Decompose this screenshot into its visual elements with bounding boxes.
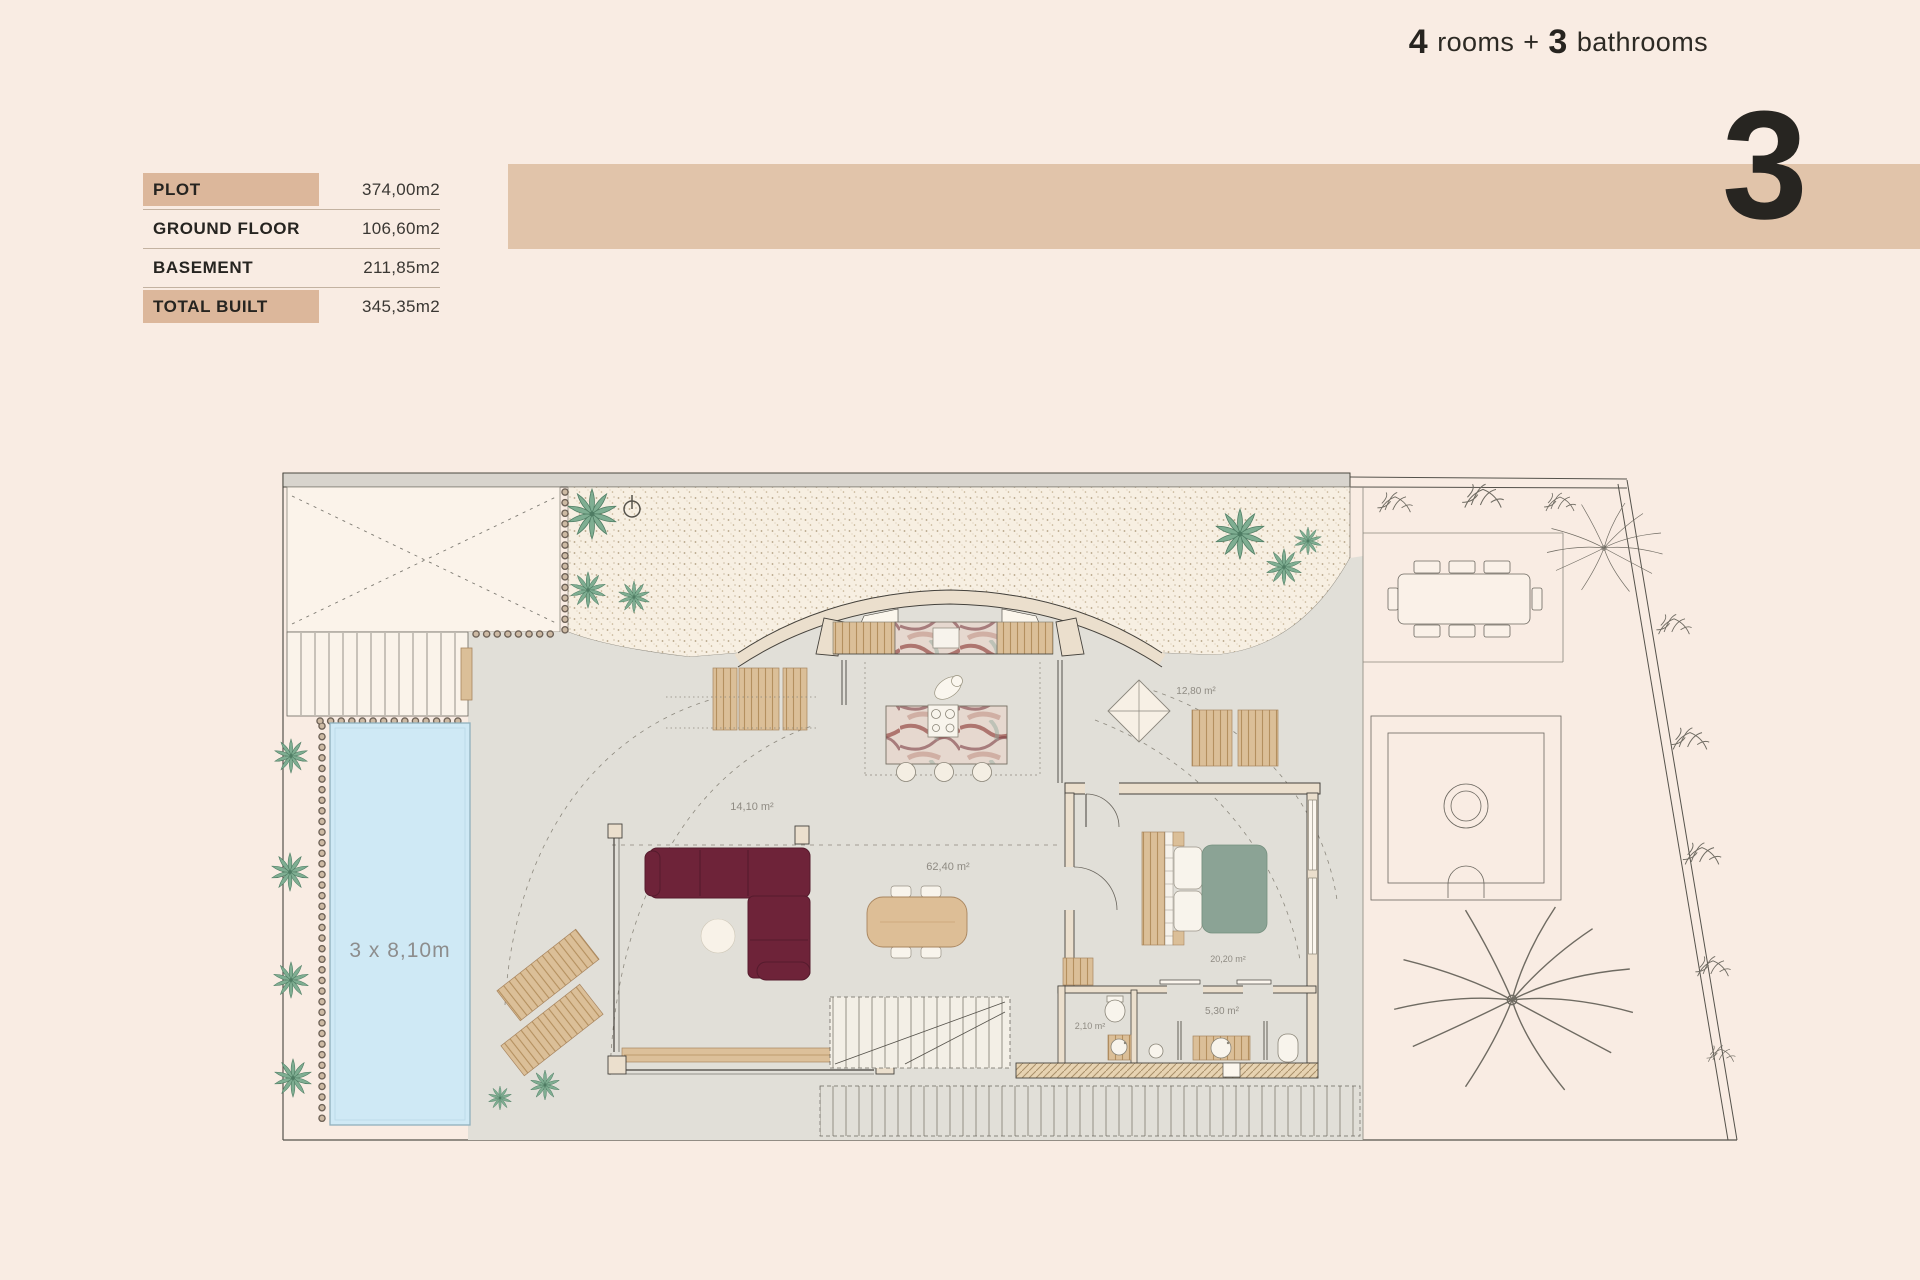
dining-area (867, 886, 967, 958)
bar-stools (897, 763, 992, 782)
wardrobe (1063, 958, 1093, 985)
label-toilet: 2,10 m² (1075, 1021, 1106, 1031)
label-terrace-right: 12,80 m² (1176, 686, 1216, 697)
label-bedroom: 20,20 m² (1210, 954, 1246, 964)
garden (1363, 484, 1735, 1140)
wc-sink (1108, 1035, 1131, 1060)
area-value: 374,00m2 (362, 180, 440, 200)
area-label: TOTAL BUILT (143, 297, 268, 317)
bottom-wall (1016, 1063, 1318, 1078)
label-bathroom: 5,30 m² (1205, 1006, 1240, 1017)
swimming-pool: 3 x 8,10m (330, 723, 470, 1125)
label-living-dining: 62,40 m² (926, 861, 970, 873)
sun-lounger (1238, 710, 1278, 766)
lower-stairs (820, 1086, 1360, 1136)
sun-lounger (1192, 710, 1232, 766)
bathtub (1278, 1034, 1298, 1062)
entry-door (461, 648, 472, 700)
fire-pit-lounge (1371, 716, 1561, 900)
kitchen-cabinet-left (833, 622, 895, 654)
coffee-table (701, 919, 735, 953)
floorplan-page: { "header": { "unit_number": "3", "rooms… (0, 0, 1920, 1280)
garden-palm-large (1394, 907, 1633, 1090)
label-terrace-left: 14,10 m² (730, 801, 774, 813)
pool-size-label: 3 x 8,10m (349, 939, 450, 962)
toilet (1105, 996, 1125, 1022)
area-label: BASEMENT (143, 258, 253, 278)
main-stairs (830, 997, 1010, 1068)
vanity (1193, 1036, 1250, 1060)
garden-dining-set (1388, 561, 1542, 637)
garden-palm-small (1547, 503, 1663, 592)
entry-stairs (287, 632, 472, 716)
pedestal-sink (1149, 1044, 1163, 1058)
cooktop (928, 705, 958, 737)
top-wall (283, 473, 1350, 487)
driveway (287, 487, 560, 632)
area-value: 106,60m2 (362, 219, 440, 239)
area-label: PLOT (143, 180, 201, 200)
kitchen-cabinet-right (997, 622, 1053, 654)
area-value: 345,35m2 (362, 297, 440, 317)
bed (1142, 832, 1267, 945)
area-value: 211,85m2 (363, 258, 440, 278)
kitchen-sink (933, 628, 959, 648)
area-label: GROUND FLOOR (143, 219, 300, 239)
duvet (1202, 845, 1267, 933)
floor-plan: 3 x 8,10m (0, 0, 1920, 1280)
